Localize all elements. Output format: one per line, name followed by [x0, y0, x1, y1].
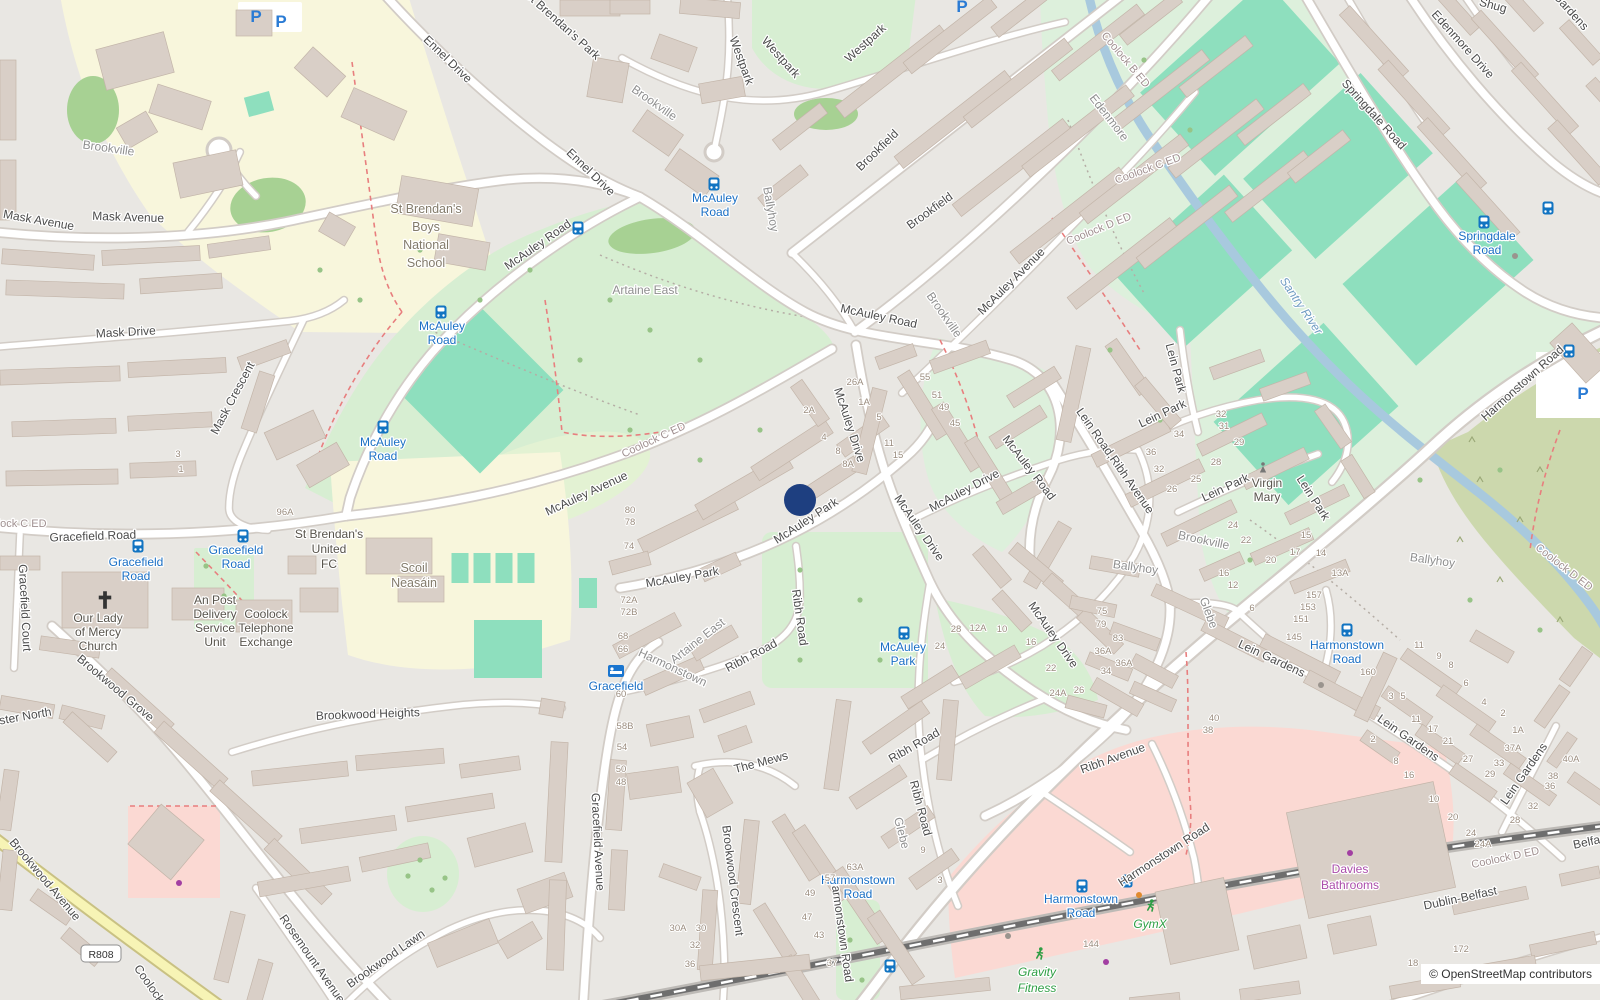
house-number: 144 [1083, 939, 1099, 950]
tree-icon [877, 657, 882, 662]
house-number: 48 [616, 777, 627, 788]
house-number: 72A [621, 595, 639, 606]
tree-icon [1141, 57, 1146, 62]
house-number: 50 [616, 764, 627, 775]
tree-icon [697, 457, 702, 462]
tree-icon [429, 887, 434, 892]
house-number: 2 [1500, 708, 1505, 719]
sports-pitch [496, 553, 513, 583]
house-number: 6 [1463, 678, 1468, 689]
house-number: 49 [939, 402, 950, 413]
house-number: 29 [1234, 437, 1245, 448]
house-number: 3 [937, 875, 942, 886]
house-number: 2A [803, 405, 815, 416]
house-number: 26 [1167, 484, 1178, 495]
house-number: 40A [1563, 754, 1581, 765]
sports-pitch [474, 553, 491, 583]
house-number: 8 [835, 446, 840, 457]
tree-icon [357, 297, 362, 302]
house-number: 74 [624, 541, 635, 552]
house-number: 96A [277, 507, 295, 518]
sports-pitch [452, 553, 469, 583]
sports-pitch [579, 578, 597, 608]
shop-dot-icon [1347, 850, 1353, 856]
house-number: 9 [920, 845, 925, 856]
bus-stop-icon [436, 306, 447, 319]
house-number: 83 [1113, 633, 1124, 644]
tree-icon [647, 327, 652, 332]
bus-stop-icon [1479, 216, 1490, 229]
house-number: 14 [1316, 548, 1327, 559]
building [587, 57, 629, 103]
house-number: 172 [1453, 944, 1469, 955]
house-number: 57 [825, 873, 836, 884]
house-number: 24A [1050, 688, 1068, 699]
house-number: 1 [178, 464, 183, 475]
house-number: 18 [1408, 958, 1419, 969]
junction-dot [1318, 682, 1324, 688]
house-number: 32 [1154, 464, 1165, 475]
house-number: 9 [1436, 651, 1441, 662]
house-number: 31 [1219, 421, 1230, 432]
house-number: 24 [1466, 828, 1477, 839]
building [1155, 878, 1239, 965]
house-number: 66 [618, 644, 629, 655]
house-number: 21 [1443, 736, 1454, 747]
bus-stop-icon [885, 960, 896, 973]
house-number: 63A [847, 862, 865, 873]
house-number: 78 [625, 517, 636, 528]
bus-stop-icon [899, 627, 910, 640]
house-number: 27 [1463, 754, 1474, 765]
tree-icon [1467, 597, 1472, 602]
house-number: 37 [827, 958, 838, 969]
building [12, 418, 116, 437]
svg-text:R808: R808 [88, 949, 113, 961]
house-number: 24 [1228, 520, 1239, 531]
house-number: 75 [1097, 606, 1108, 617]
house-number: 4 [1481, 697, 1486, 708]
house-number: 8 [1393, 756, 1398, 767]
house-number: 36 [685, 959, 696, 970]
house-number: 34 [1101, 666, 1112, 677]
tree-icon [857, 597, 862, 602]
lodging-icon [608, 665, 624, 677]
house-number: 11 [1414, 640, 1424, 651]
house-number: 36 [1146, 447, 1157, 458]
house-number: 160 [1360, 667, 1376, 678]
building [130, 461, 196, 478]
house-number: 2 [1370, 734, 1375, 745]
house-number: 20 [1448, 812, 1459, 823]
house-number: 32 [1216, 409, 1227, 420]
tree-icon [1497, 467, 1502, 472]
house-number: 8 [1448, 660, 1453, 671]
house-number: 153 [1300, 602, 1316, 613]
house-number: 16 [1219, 568, 1230, 579]
house-number: 157 [1306, 590, 1322, 601]
house-number: 30 [696, 923, 707, 934]
building [546, 880, 566, 971]
tree-icon [203, 563, 208, 568]
tree-icon [442, 875, 447, 880]
house-number: 16 [1026, 637, 1037, 648]
bus-stop-icon [238, 530, 249, 543]
tree-icon [1247, 557, 1252, 562]
tree-icon [317, 267, 322, 272]
tree-icon [1417, 477, 1422, 482]
shop-dot-icon [1103, 959, 1109, 965]
attribution-text[interactable]: © OpenStreetMap contributors [1429, 967, 1592, 981]
tree-icon [1537, 627, 1542, 632]
bus-stop-icon [1342, 624, 1353, 637]
house-number: 30A [670, 923, 688, 934]
house-number: 25 [1191, 474, 1202, 485]
house-number: 8A [842, 459, 854, 470]
bus-stop-icon [1543, 202, 1554, 215]
house-number: 4 [821, 432, 826, 443]
house-number: 55 [920, 372, 931, 383]
house-number: 22 [1046, 663, 1057, 674]
house-number: 11 [884, 438, 894, 449]
house-number: 38 [1203, 725, 1214, 736]
house-number: 60 [616, 689, 627, 700]
house-number: 20 [1266, 555, 1277, 566]
tree-icon [527, 267, 532, 272]
house-number: 28 [1211, 457, 1222, 468]
tree-icon [757, 427, 762, 432]
tree-icon [607, 297, 612, 302]
tree-icon [797, 567, 802, 572]
house-number: 79 [1096, 619, 1107, 630]
shop-dot-icon [1136, 892, 1142, 898]
house-number: 49 [805, 888, 816, 899]
house-number: 72B [621, 607, 638, 618]
house-number: 16 [1404, 770, 1415, 781]
sports-pitch [474, 620, 542, 678]
building [6, 469, 118, 486]
house-number: 80 [625, 505, 636, 516]
bus-stop-icon [1564, 345, 1575, 358]
parking-icon: P [1577, 384, 1588, 403]
tree-icon [859, 977, 864, 982]
junction-dot [1005, 933, 1011, 939]
bus-stop-icon [378, 421, 389, 434]
tree-icon [477, 297, 482, 302]
house-number: 10 [1429, 794, 1440, 805]
sports-pitch [518, 553, 535, 583]
house-number: 5 [1400, 691, 1405, 702]
tree-icon [1187, 127, 1192, 132]
house-number: 33 [1494, 758, 1505, 769]
house-number: 3 [175, 449, 180, 460]
building [300, 588, 338, 612]
shop-dot-icon [176, 880, 182, 886]
parking-icon: P [250, 7, 261, 26]
house-number: 24A [1475, 839, 1493, 850]
house-number: 37A [1505, 743, 1523, 754]
building [288, 556, 316, 574]
house-number: 26 [1074, 685, 1085, 696]
house-number: 28 [1510, 815, 1521, 826]
road-ref-badge: R808 [81, 945, 121, 962]
house-number: 11 [1411, 714, 1421, 725]
poi-label: CoolockTelephoneExchange [238, 607, 294, 649]
bus-stop-icon [1077, 880, 1088, 893]
house-number: 45 [950, 418, 961, 429]
street-label: Mask Avenue [92, 209, 165, 226]
boundary-label: Coolock C ED [0, 518, 47, 530]
building [0, 60, 16, 140]
tree-icon [697, 357, 702, 362]
poi-label: VirginMary [1252, 476, 1282, 504]
junction-dot [1512, 253, 1518, 259]
house-number: 26A [847, 377, 865, 388]
building [608, 850, 627, 911]
house-number: 40 [1209, 713, 1220, 724]
house-number: 68 [618, 631, 629, 642]
house-number: 29 [1485, 769, 1496, 780]
house-number: 47 [802, 912, 813, 923]
place-label: Artaine East [612, 283, 678, 297]
house-number: 10 [997, 624, 1008, 635]
house-number: 3 [1388, 691, 1393, 702]
house-number: 32 [690, 940, 701, 951]
poi-label: Our Ladyof MercyChurch [73, 611, 122, 653]
house-number: 58B [617, 721, 634, 732]
house-number: 24 [935, 641, 946, 652]
house-number: 6 [1249, 603, 1254, 614]
poi-label: GymX [1133, 917, 1167, 931]
tree-icon [1107, 347, 1112, 352]
house-number: 15 [893, 450, 904, 461]
house-number: 34 [1174, 429, 1185, 440]
house-number: 54 [617, 742, 628, 753]
house-number: 12A [970, 623, 988, 634]
map-attribution[interactable]: © OpenStreetMap contributors [1421, 964, 1600, 984]
tree-icon [797, 657, 802, 662]
house-number: 151 [1293, 614, 1309, 625]
tree-icon [417, 857, 422, 862]
house-number: 5 [876, 412, 881, 423]
house-number: 36A [1116, 658, 1134, 669]
house-number: 17 [1428, 724, 1439, 735]
tree-icon [627, 427, 632, 432]
house-number: 36 [1545, 781, 1556, 792]
house-number: 15 [1301, 530, 1312, 541]
house-number: 51 [932, 390, 943, 401]
house-number: 22 [1241, 535, 1252, 546]
tree-icon [405, 873, 410, 878]
house-number: 13A [1332, 568, 1350, 579]
map-canvas[interactable]: PPPP Mask AvenueMask AvenueMask DriveMas… [0, 0, 1600, 1000]
parking-icon: P [275, 12, 286, 31]
bus-stop-icon [709, 178, 720, 191]
house-number: 145 [1286, 632, 1302, 643]
building [610, 0, 650, 14]
house-number: 36A [1095, 646, 1113, 657]
bus-stop-icon [573, 222, 584, 235]
tree-icon [577, 357, 582, 362]
house-number: 17 [1290, 547, 1301, 558]
house-number: 1A [858, 397, 870, 408]
house-number: 32 [1528, 801, 1539, 812]
house-number: 1A [1512, 725, 1524, 736]
parking-icon: P [956, 0, 967, 16]
house-number: 28 [951, 624, 962, 635]
house-number: 12 [1228, 580, 1239, 591]
house-number: 43 [814, 930, 825, 941]
